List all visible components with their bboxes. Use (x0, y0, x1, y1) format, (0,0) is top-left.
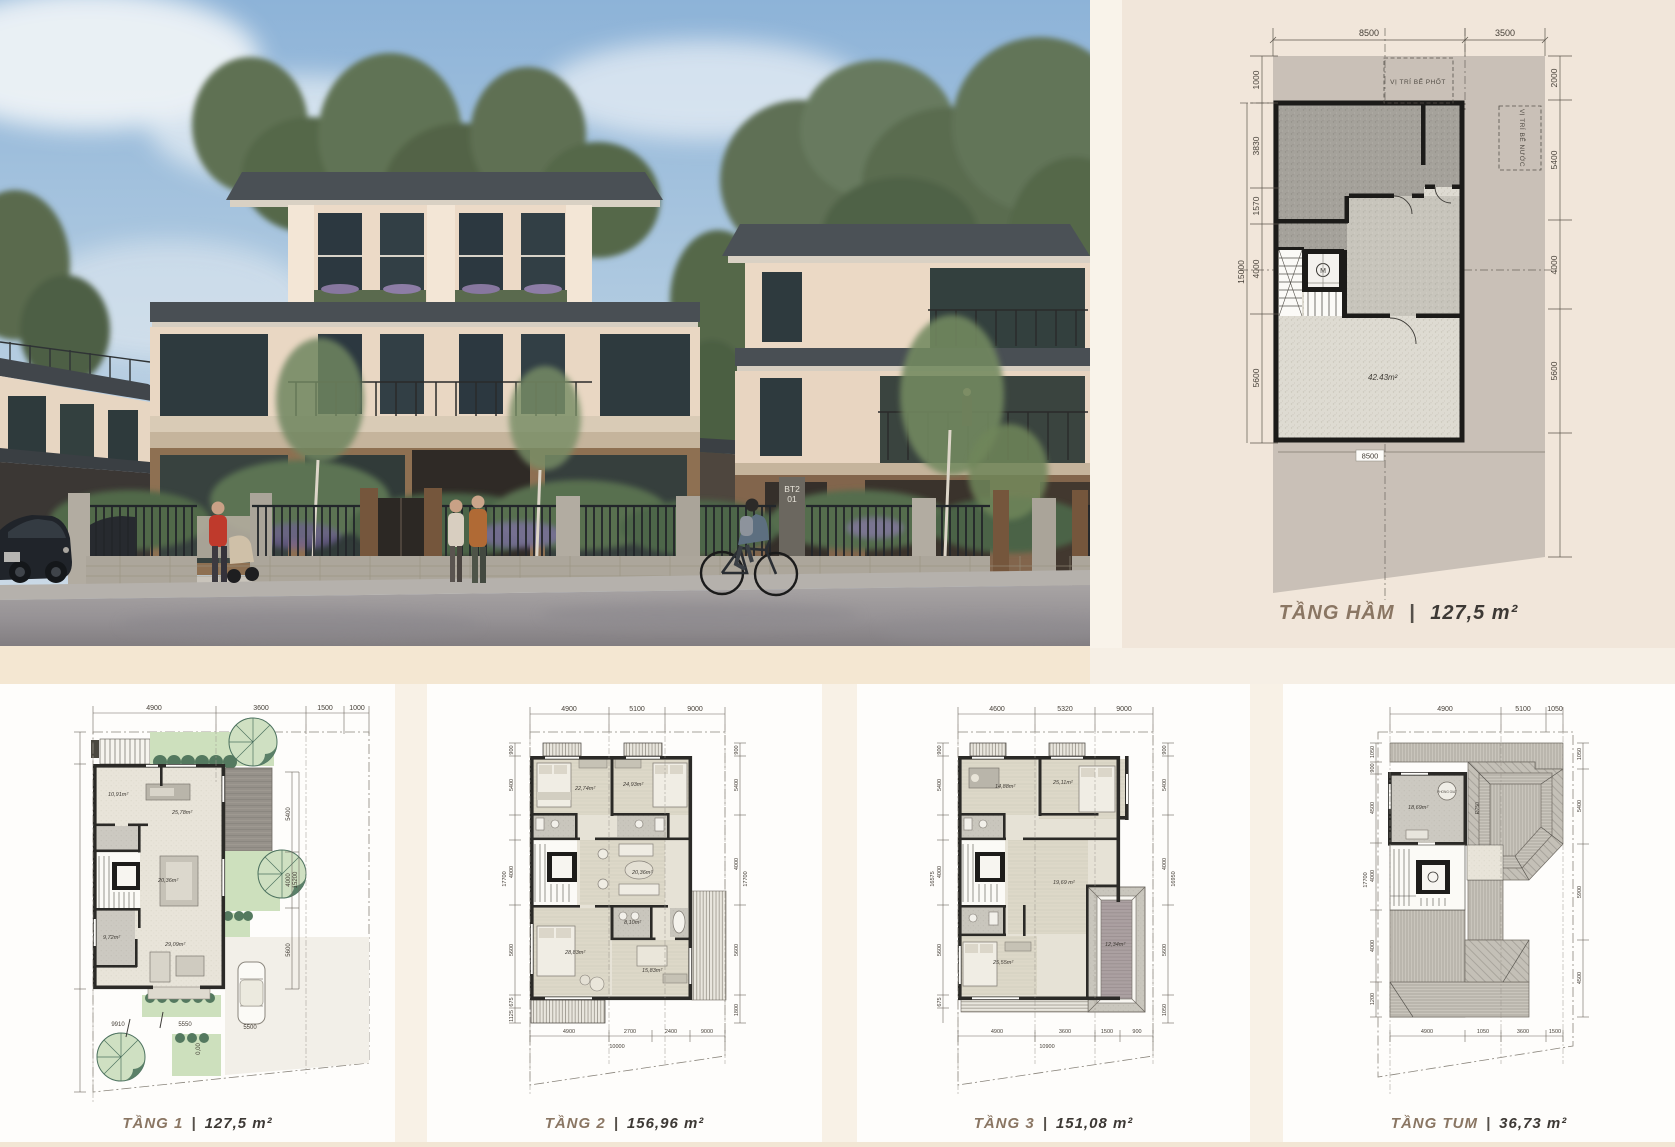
svg-text:16575: 16575 (930, 871, 936, 886)
svg-text:4000: 4000 (734, 858, 740, 870)
svg-text:8500: 8500 (1362, 452, 1379, 461)
svg-text:VỊ TRÍ BỂ NƯỚC: VỊ TRÍ BỂ NƯỚC (1518, 109, 1527, 167)
svg-text:2000: 2000 (1549, 68, 1559, 87)
svg-text:1800: 1800 (734, 1004, 740, 1016)
svg-text:14,88m²: 14,88m² (995, 784, 1015, 790)
svg-text:PHONG GIAT: PHONG GIAT (1437, 790, 1457, 794)
svg-text:5600: 5600 (1549, 361, 1559, 380)
svg-text:5400: 5400 (286, 807, 292, 821)
svg-text:25,55m²: 25,55m² (992, 960, 1013, 966)
svg-text:5900: 5900 (1577, 886, 1583, 898)
svg-text:5400: 5400 (1162, 779, 1168, 791)
svg-text:5600: 5600 (937, 944, 943, 956)
svg-text:4000: 4000 (937, 866, 943, 878)
svg-text:8,10m²: 8,10m² (624, 920, 641, 926)
svg-text:2700: 2700 (624, 1029, 636, 1035)
svg-text:29,09m²: 29,09m² (164, 942, 185, 948)
svg-text:1570: 1570 (1251, 196, 1261, 215)
svg-text:20,36m²: 20,36m² (157, 878, 178, 884)
svg-text:1050: 1050 (1162, 1004, 1168, 1016)
svg-text:5100: 5100 (629, 706, 645, 713)
svg-text:10000: 10000 (609, 1044, 624, 1050)
svg-text:0,00: 0,00 (196, 1043, 202, 1055)
svg-text:18,69m²: 18,69m² (1408, 805, 1428, 811)
svg-text:1125: 1125 (509, 1010, 515, 1022)
svg-text:5400: 5400 (509, 779, 515, 791)
svg-text:25,11m²: 25,11m² (1052, 780, 1073, 786)
svg-text:10,91m²: 10,91m² (108, 792, 128, 798)
svg-text:4000: 4000 (509, 866, 515, 878)
svg-text:5400: 5400 (1549, 150, 1559, 169)
svg-text:1050: 1050 (1547, 706, 1563, 713)
svg-text:2400: 2400 (665, 1029, 677, 1035)
svg-text:4500: 4500 (1370, 802, 1376, 814)
svg-text:1500: 1500 (317, 705, 333, 712)
svg-text:9910: 9910 (111, 1022, 125, 1028)
svg-text:900: 900 (1162, 745, 1168, 754)
svg-text:1050: 1050 (1370, 746, 1376, 758)
svg-text:3500: 3500 (1495, 28, 1515, 38)
svg-text:5500: 5500 (243, 1025, 257, 1031)
svg-text:1000: 1000 (349, 705, 365, 712)
svg-text:675: 675 (937, 997, 943, 1006)
svg-text:17700: 17700 (743, 871, 749, 886)
svg-text:01: 01 (787, 494, 797, 504)
svg-text:900: 900 (734, 745, 740, 754)
svg-text:4900: 4900 (991, 1029, 1003, 1035)
svg-text:15200: 15200 (293, 871, 299, 888)
svg-text:4000: 4000 (1549, 255, 1559, 274)
svg-text:4900: 4900 (1437, 706, 1453, 713)
svg-text:5600: 5600 (509, 944, 515, 956)
svg-text:4900: 4900 (146, 705, 162, 712)
svg-text:4900: 4900 (563, 1029, 575, 1035)
svg-text:4600: 4600 (989, 706, 1005, 713)
svg-text:5600: 5600 (1162, 944, 1168, 956)
svg-text:5100: 5100 (1515, 706, 1531, 713)
svg-text:900: 900 (1370, 763, 1376, 772)
svg-text:8500: 8500 (1359, 28, 1379, 38)
svg-text:1500: 1500 (1549, 1029, 1561, 1035)
svg-text:1200: 1200 (1370, 993, 1376, 1005)
svg-text:3600: 3600 (253, 705, 269, 712)
svg-text:4000: 4000 (286, 873, 292, 887)
svg-text:9000: 9000 (1116, 706, 1132, 713)
svg-text:15,83m²: 15,83m² (642, 968, 662, 974)
svg-text:900: 900 (509, 745, 515, 754)
svg-text:4000: 4000 (1370, 870, 1376, 882)
svg-text:4000: 4000 (1251, 259, 1261, 278)
svg-text:12,34m²: 12,34m² (1105, 942, 1125, 948)
svg-text:5400: 5400 (1577, 800, 1583, 812)
svg-text:5400: 5400 (734, 779, 740, 791)
svg-text:17700: 17700 (502, 871, 508, 886)
svg-text:1050: 1050 (1477, 1029, 1489, 1035)
svg-text:16950: 16950 (1171, 871, 1177, 886)
svg-text:675: 675 (509, 997, 515, 1006)
svg-text:5600: 5600 (734, 944, 740, 956)
svg-text:42.43m²: 42.43m² (1368, 373, 1398, 382)
svg-text:9000: 9000 (701, 1029, 713, 1035)
svg-text:3600: 3600 (1517, 1029, 1529, 1035)
svg-text:1500: 1500 (1101, 1029, 1113, 1035)
svg-text:15000: 15000 (1236, 260, 1246, 284)
svg-text:9000: 9000 (687, 706, 703, 713)
svg-text:Đ750: Đ750 (1475, 802, 1481, 814)
svg-text:4500: 4500 (1577, 972, 1583, 984)
svg-text:4000: 4000 (1162, 858, 1168, 870)
svg-text:5600: 5600 (1251, 368, 1261, 387)
svg-text:19,69 m²: 19,69 m² (1053, 880, 1075, 886)
svg-text:5400: 5400 (937, 779, 943, 791)
svg-text:24,93m²: 24,93m² (622, 782, 643, 788)
svg-text:28,83m²: 28,83m² (564, 950, 585, 956)
svg-text:17700: 17700 (1363, 872, 1369, 887)
svg-text:25,78m²: 25,78m² (171, 810, 192, 816)
svg-text:1000: 1000 (1251, 70, 1261, 89)
svg-text:3600: 3600 (1059, 1029, 1071, 1035)
svg-text:4900: 4900 (561, 706, 577, 713)
svg-text:9,72m²: 9,72m² (103, 935, 120, 941)
svg-text:900: 900 (1132, 1029, 1141, 1035)
svg-text:20,36m²: 20,36m² (631, 870, 652, 876)
svg-text:3830: 3830 (1251, 136, 1261, 155)
svg-text:4000: 4000 (1370, 940, 1376, 952)
svg-text:5600: 5600 (286, 943, 292, 957)
svg-text:1050: 1050 (1577, 748, 1583, 760)
svg-text:4900: 4900 (1421, 1029, 1433, 1035)
svg-text:5550: 5550 (178, 1022, 192, 1028)
svg-text:10900: 10900 (1039, 1044, 1054, 1050)
svg-text:BT2: BT2 (784, 484, 800, 494)
svg-text:900: 900 (937, 745, 943, 754)
svg-text:5320: 5320 (1057, 706, 1073, 713)
svg-text:22,74m²: 22,74m² (574, 786, 595, 792)
